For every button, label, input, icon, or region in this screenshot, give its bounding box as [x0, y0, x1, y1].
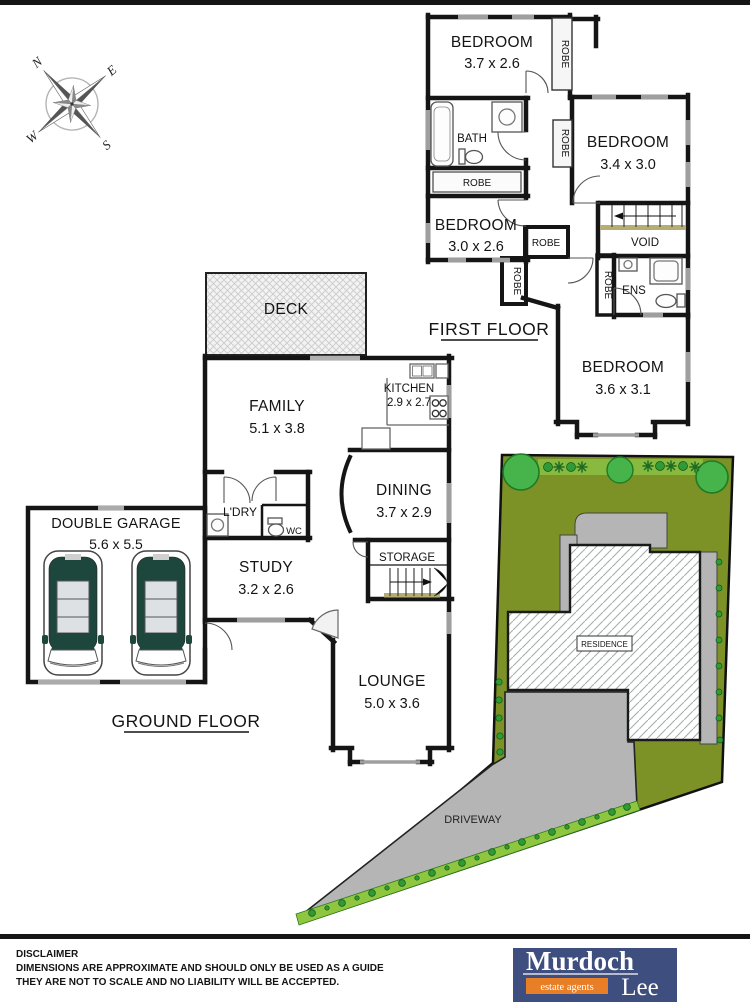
disclaimer-title: DISCLAIMER [16, 949, 79, 960]
bedroom3-label: BEDROOM [435, 217, 517, 234]
agency-logo: Murdoch estate agents Lee [513, 946, 677, 1002]
dining-label: DINING [376, 482, 432, 499]
storage-label: STORAGE [379, 552, 435, 564]
compass-west-label: W [23, 127, 42, 146]
void-label: VOID [631, 237, 659, 249]
study-dims: 3.2 x 2.6 [238, 582, 294, 598]
first-floor-title: FIRST FLOOR [429, 319, 550, 339]
residence-label: RESIDENCE [581, 640, 628, 649]
bedroom4-dims: 3.6 x 3.1 [595, 382, 651, 398]
deck-label: DECK [264, 301, 309, 318]
robe-label: ROBE [559, 129, 570, 158]
robe-label: ROBE [532, 238, 561, 249]
compass-north-label: N [28, 53, 46, 72]
kitchen-label: KITCHEN [384, 383, 434, 395]
logo-name-bottom: Lee [621, 974, 658, 1001]
ground-floor-plan: DECK [28, 273, 452, 764]
bedroom1-label: BEDROOM [451, 34, 533, 51]
kitchen-dims: 2.9 x 2.7 [387, 397, 431, 409]
driveway-surface [304, 692, 637, 920]
family-dims: 5.1 x 3.8 [249, 421, 305, 437]
compass-east-label: E [103, 62, 120, 79]
study-label: STUDY [239, 559, 293, 576]
stairs-ground-floor [384, 568, 447, 598]
logo-name-top: Murdoch [526, 946, 634, 976]
logo-tagline: estate agents [540, 982, 593, 993]
bedroom3-dims: 3.0 x 2.6 [448, 239, 504, 255]
ens-fixtures [619, 258, 685, 308]
laundry-label: L'DRY [223, 505, 257, 519]
footer-divider [0, 934, 750, 939]
disclaimer-line1: DIMENSIONS ARE APPROXIMATE AND SHOULD ON… [16, 963, 384, 974]
robe-label: ROBE [463, 178, 492, 189]
disclaimer-line2: THEY ARE NOT TO SCALE AND NO LIABILITY W… [16, 977, 339, 988]
lounge-label: LOUNGE [358, 673, 425, 690]
garage-dims: 5.6 x 5.5 [89, 536, 143, 552]
car-icon [42, 551, 104, 675]
ens-label: ENS [622, 285, 646, 297]
lounge-dims: 5.0 x 3.6 [364, 696, 420, 712]
bedroom2-label: BEDROOM [587, 134, 669, 151]
dining-dims: 3.7 x 2.9 [376, 505, 432, 521]
family-label: FAMILY [249, 398, 305, 415]
compass-rose-icon: N E S W [0, 20, 154, 187]
first-floor-plan: BEDROOM 3.7 x 2.6 BEDROOM 3.4 x 3.0 BEDR… [428, 15, 688, 437]
robe-label: ROBE [511, 267, 522, 296]
bedroom2-dims: 3.4 x 3.0 [600, 157, 656, 173]
compass-south-label: S [99, 137, 114, 153]
wc-label: WC [286, 526, 302, 537]
car-icon [130, 551, 192, 675]
robe-label: ROBE [602, 271, 613, 300]
stairs-first-floor [600, 205, 686, 230]
ground-floor-title: GROUND FLOOR [112, 711, 261, 731]
floorplan-page: N E S W [0, 0, 750, 1002]
bath-label: BATH [457, 133, 487, 145]
footer: DISCLAIMER DIMENSIONS ARE APPROXIMATE AN… [16, 946, 677, 1002]
robe-label: ROBE [559, 40, 570, 69]
bedroom1-dims: 3.7 x 2.6 [464, 56, 520, 72]
driveway-label: DRIVEWAY [444, 814, 502, 826]
garage-label: DOUBLE GARAGE [51, 516, 181, 532]
bedroom4-label: BEDROOM [582, 359, 664, 376]
top-border [0, 0, 750, 5]
